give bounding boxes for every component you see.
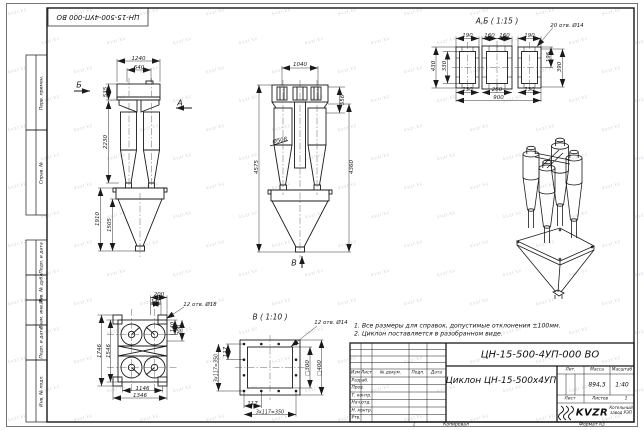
- row-t-kontr: Т. контр.: [352, 393, 372, 398]
- dim-label: 200: [177, 325, 183, 336]
- value-sheets: 1: [625, 397, 628, 402]
- dim-label: □300: [305, 360, 311, 376]
- dim-label: 556: [340, 95, 346, 106]
- dim-label: 117: [223, 347, 229, 358]
- dim-label: 2230: [103, 135, 109, 149]
- dim-label: 640: [134, 65, 145, 71]
- margin-label-sprav-no: Справ. №: [39, 161, 44, 183]
- dim-label: 130: [524, 87, 535, 93]
- label-lit: Лит.: [566, 368, 576, 373]
- row-utv: Утв.: [352, 416, 361, 421]
- company-name: Котельный завод РЭП: [608, 406, 634, 416]
- dim-label: 1505: [107, 218, 113, 232]
- dim-label: □400: [317, 360, 323, 376]
- dim-label: Ø508: [272, 137, 288, 146]
- col-docnum: № докум.: [380, 371, 401, 376]
- col-izm: Изм: [351, 371, 360, 376]
- dim-label: 3х117=350: [256, 410, 284, 415]
- margin-label-perv-primen: Перв. примен.: [39, 75, 44, 110]
- dim-label: 1146: [136, 386, 150, 392]
- dim-label: 140: [151, 299, 162, 305]
- dim-label: 4360: [349, 160, 355, 174]
- row-nach-otd: Нач.отд.: [352, 401, 371, 406]
- dim-label: 900: [493, 95, 504, 101]
- dimension-labels: 1240640535223019101505БА1040556Ø50845754…: [0, 0, 644, 430]
- drawing-sheet: kvzr.kzkvzr.kzkvzr.kzkvzr.kzkvzr.kzkvzr.…: [0, 0, 644, 430]
- dim-label: 160: [499, 33, 510, 39]
- detail-ab-title: А,Б ( 1:15 ): [476, 17, 519, 26]
- margin-label-podp-data-2: Подп. и дата: [39, 327, 44, 358]
- margin-label-vzam-inv: Взам. инв. №: [39, 297, 44, 328]
- view-arrow-label-v: В: [291, 259, 297, 268]
- titleblock-doc-number: ЦН-15-500-4УП-000 ВО: [481, 349, 600, 360]
- dim-label: 12 отв. Ø14: [314, 320, 347, 326]
- note-1: 1. Все размеры для справок, допустимые о…: [354, 323, 561, 330]
- dim-label: 190: [462, 33, 473, 39]
- dim-label: 1240: [132, 56, 146, 62]
- label-sheet: Лист: [565, 397, 576, 402]
- dim-label: 1746: [97, 344, 103, 358]
- dim-label: 12 отв. Ø18: [183, 302, 216, 308]
- col-data: Дата: [431, 371, 442, 376]
- dim-label: 330: [442, 61, 448, 72]
- note-2: 2. Циклон поставляется в разобранном вид…: [354, 330, 503, 337]
- row-n-kontr: Н. контр.: [352, 408, 373, 413]
- row-razrab: Разраб.: [352, 378, 369, 383]
- label-scale: Масштаб: [612, 368, 632, 373]
- dim-label: 1346: [133, 393, 147, 399]
- dim-label: 3х117=350: [214, 353, 219, 381]
- dim-label: 190: [524, 33, 535, 39]
- zone-number: 1: [413, 422, 416, 427]
- dim-label: 200: [154, 292, 165, 298]
- dim-label: 1546: [106, 344, 112, 358]
- dim-label: 140: [170, 322, 176, 333]
- dim-label: 195: [546, 52, 552, 63]
- format-label: Формат А3: [579, 422, 605, 427]
- copied-label: Копировал: [443, 422, 469, 427]
- view-arrow-label-b: Б: [76, 81, 82, 90]
- col-podp: Подп.: [411, 371, 424, 376]
- dim-label: 1040: [293, 62, 307, 68]
- margin-label-inv-podl: Инв. № подл.: [39, 375, 44, 407]
- value-mass: 894,3: [588, 381, 605, 388]
- dim-label: 4575: [254, 160, 260, 174]
- stamp-doc-number: ЦН-15-500-4УП-000 ВО: [48, 8, 148, 26]
- label-mass: Масса: [590, 368, 604, 373]
- dim-label: 430: [431, 61, 437, 72]
- row-prov: Пров.: [352, 386, 365, 391]
- dim-label: 117: [247, 401, 258, 407]
- dim-label: 260: [492, 87, 503, 93]
- dim-label: 160: [484, 33, 495, 39]
- label-sheets: Листов: [592, 397, 608, 402]
- dim-label: 535: [103, 87, 109, 98]
- view-arrow-label-a: А: [177, 99, 182, 108]
- detail-v-title: В ( 1:10 ): [253, 313, 288, 322]
- company-logo: KVZR: [576, 407, 608, 418]
- dim-label: 1910: [95, 212, 101, 226]
- col-list: Лист: [361, 371, 372, 376]
- dim-label: 130: [462, 87, 473, 93]
- margin-label-podp-data-1: Подп. и дата: [39, 242, 44, 273]
- dim-label: 20 отв. Ø14: [550, 23, 583, 29]
- dim-label: 390: [557, 62, 563, 73]
- titleblock-title: Циклон ЦН-15-500х4УП: [446, 376, 556, 386]
- value-scale: 1:40: [615, 381, 628, 388]
